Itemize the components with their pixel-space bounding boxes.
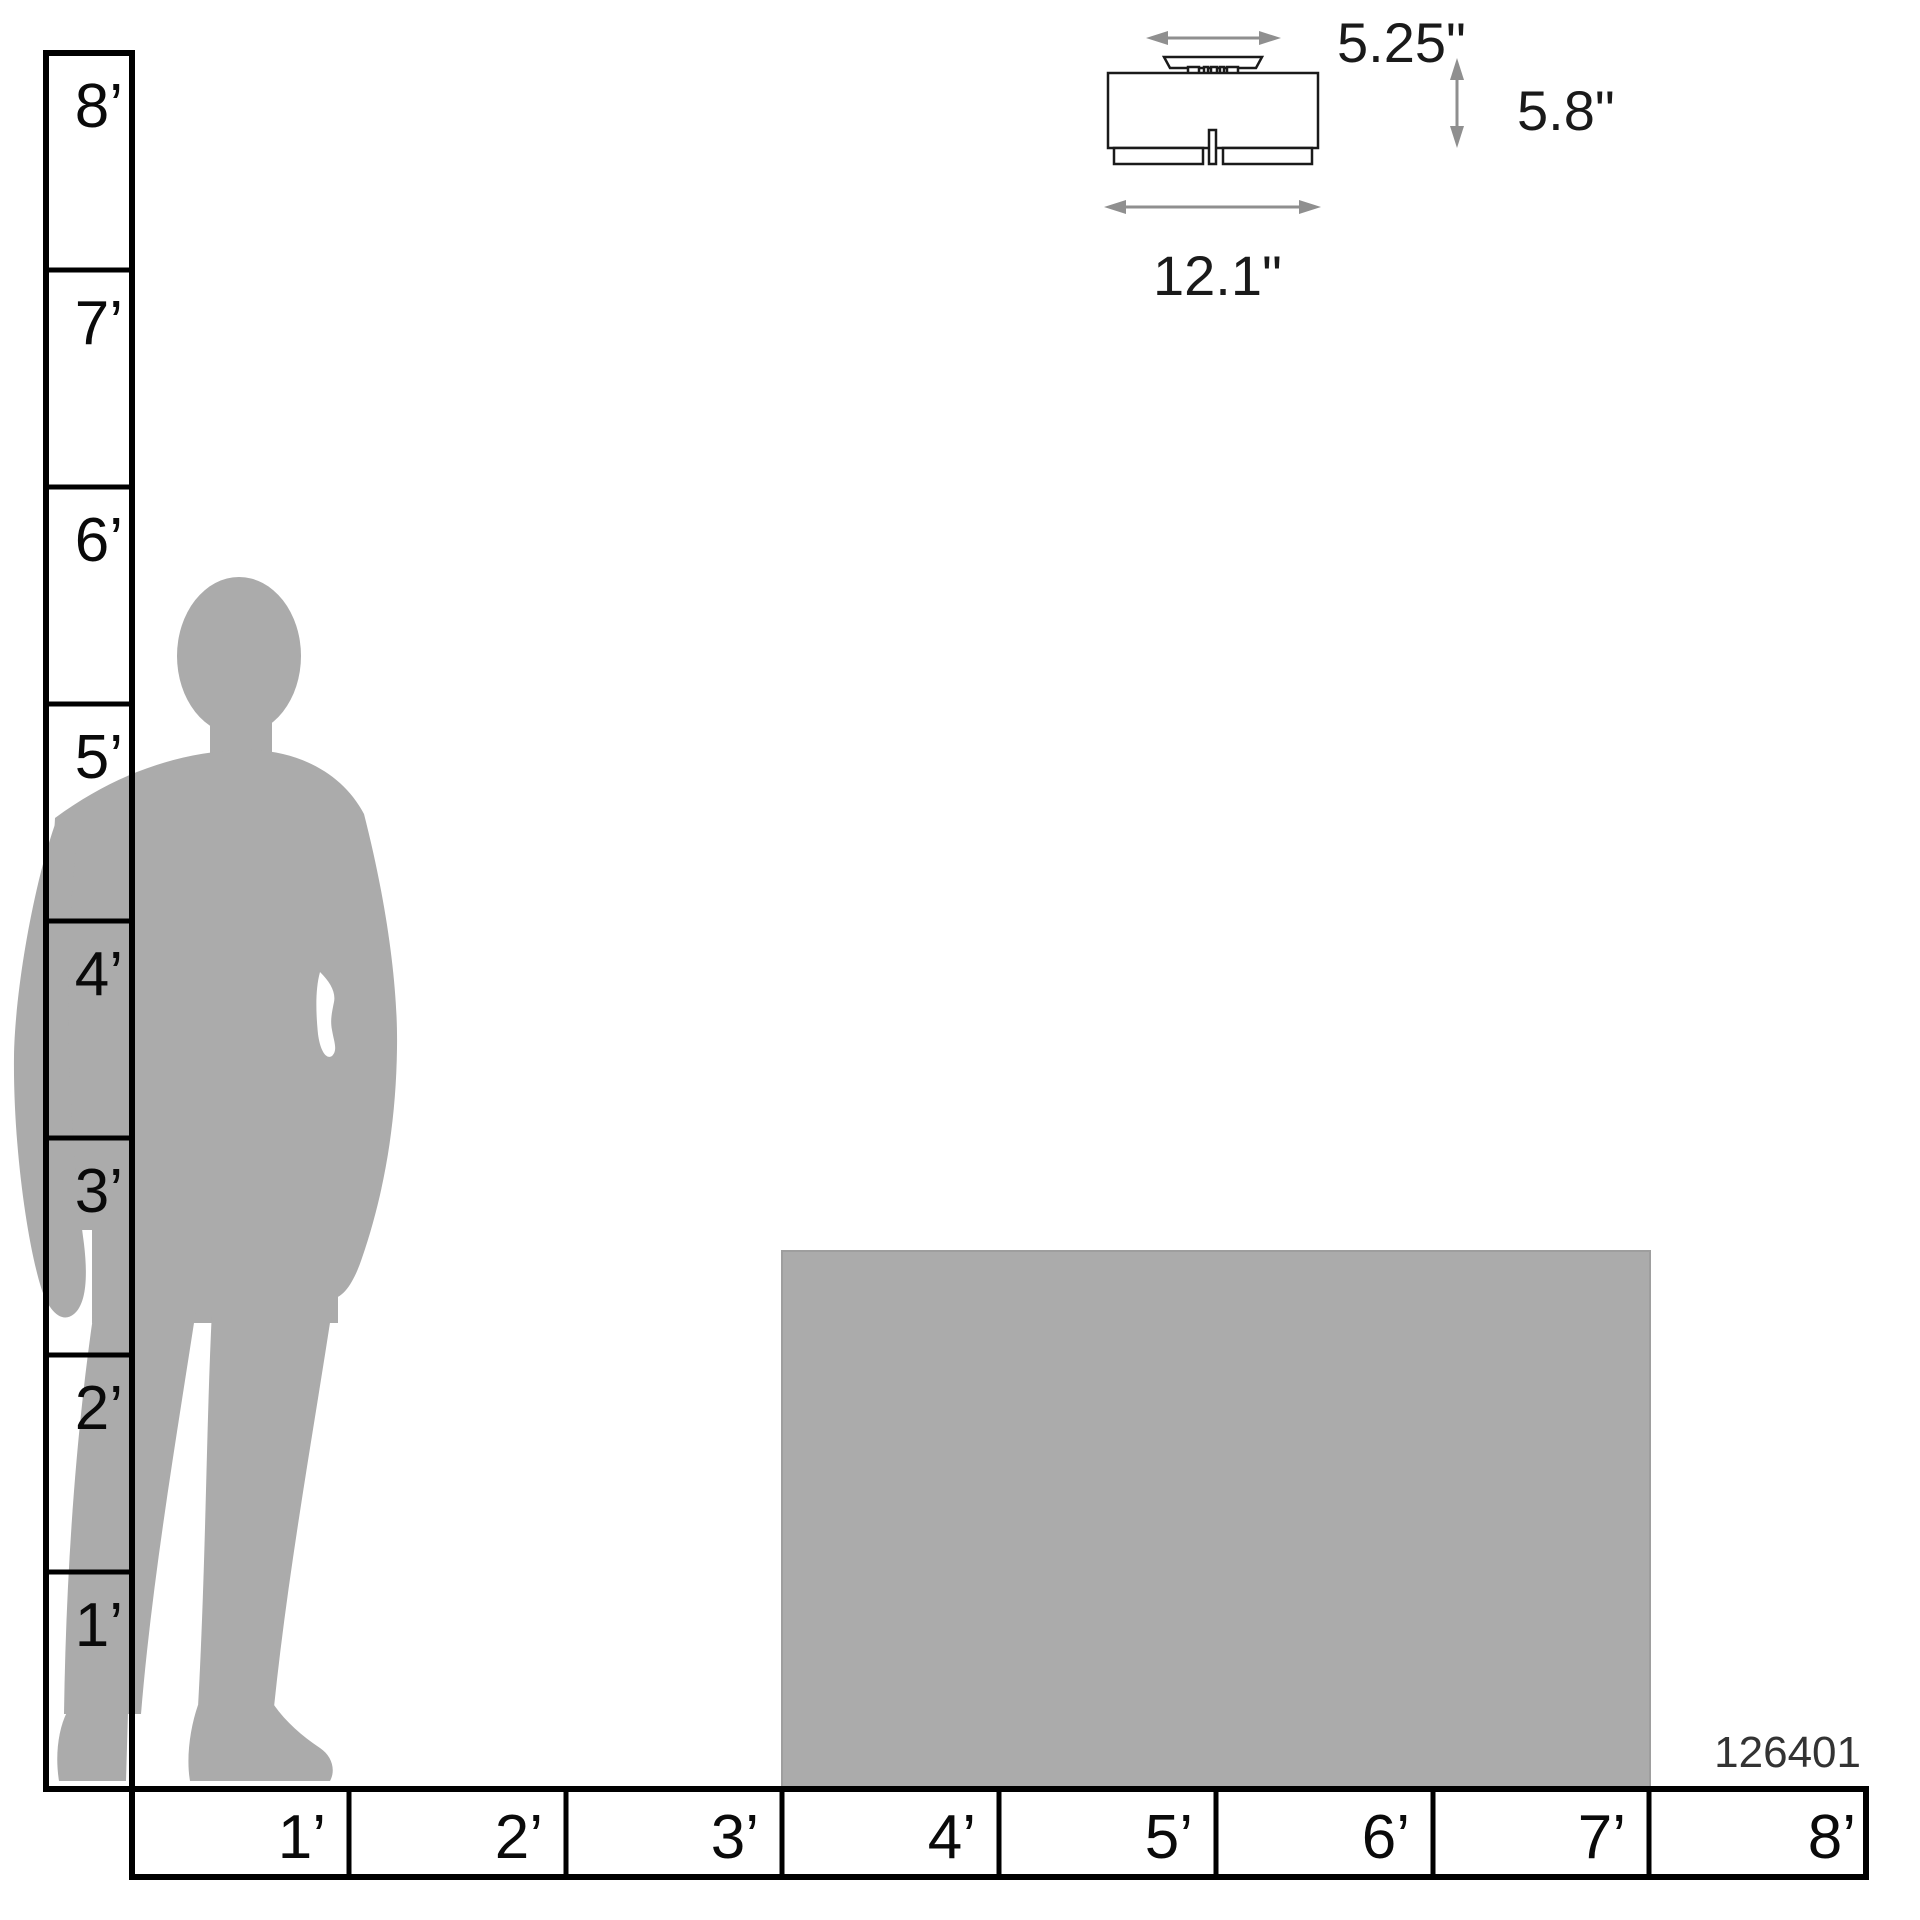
- vertical-ruler-label: 8’: [75, 72, 123, 141]
- vertical-ruler-label: 3’: [75, 1157, 123, 1226]
- person-right-leg: [198, 1310, 332, 1707]
- vertical-ruler-label: 1’: [75, 1591, 123, 1660]
- scale-diagram-canvas: 8’ 7’ 6’ 5’ 4’ 3’ 2’ 1’ 1’ 2’ 3’ 4’ 5’ 6…: [0, 0, 1920, 1920]
- horizontal-ruler: 1’ 2’ 3’ 4’ 5’ 6’ 7’ 8’: [132, 1789, 1866, 1877]
- person-hips: [92, 1205, 338, 1323]
- fixture-drawing: 5.25" 5.8" 12.1": [1104, 11, 1615, 307]
- vertical-ruler-label: 6’: [75, 506, 123, 575]
- fixture-bottom-band-left: [1114, 148, 1203, 164]
- horizontal-ruler-label: 5’: [1145, 1803, 1193, 1872]
- fixture-center-stem: [1209, 130, 1216, 164]
- horizontal-ruler-label: 1’: [278, 1803, 326, 1872]
- fixture-width-arrow-icon: [1104, 200, 1321, 214]
- vertical-ruler-label: 5’: [75, 723, 123, 792]
- vertical-ruler-label: 2’: [75, 1374, 123, 1443]
- fixture-width-label: 12.1": [1153, 244, 1282, 307]
- vertical-ruler-label: 4’: [75, 940, 123, 1009]
- person-left-shoe: [57, 1712, 128, 1781]
- horizontal-ruler-label: 2’: [495, 1803, 543, 1872]
- fixture-height-label: 5.8": [1517, 79, 1615, 142]
- scale-diagram: 8’ 7’ 6’ 5’ 4’ 3’ 2’ 1’ 1’ 2’ 3’ 4’ 5’ 6…: [0, 0, 1920, 1920]
- horizontal-ruler-label: 4’: [928, 1803, 976, 1872]
- person-silhouette: [14, 577, 397, 1781]
- fixture-bottom-band-right: [1223, 148, 1312, 164]
- horizontal-ruler-label: 6’: [1362, 1803, 1410, 1872]
- person-right-shoe: [188, 1705, 332, 1781]
- horizontal-ruler-label: 3’: [711, 1803, 759, 1872]
- product-number: 126401: [1714, 1728, 1861, 1777]
- reference-box: [782, 1251, 1650, 1789]
- horizontal-ruler-label: 8’: [1808, 1803, 1856, 1872]
- horizontal-ruler-label: 7’: [1578, 1803, 1626, 1872]
- vertical-ruler-label: 7’: [75, 289, 123, 358]
- canopy-width-label: 5.25": [1337, 11, 1466, 74]
- canopy-width-arrow-icon: [1146, 31, 1281, 45]
